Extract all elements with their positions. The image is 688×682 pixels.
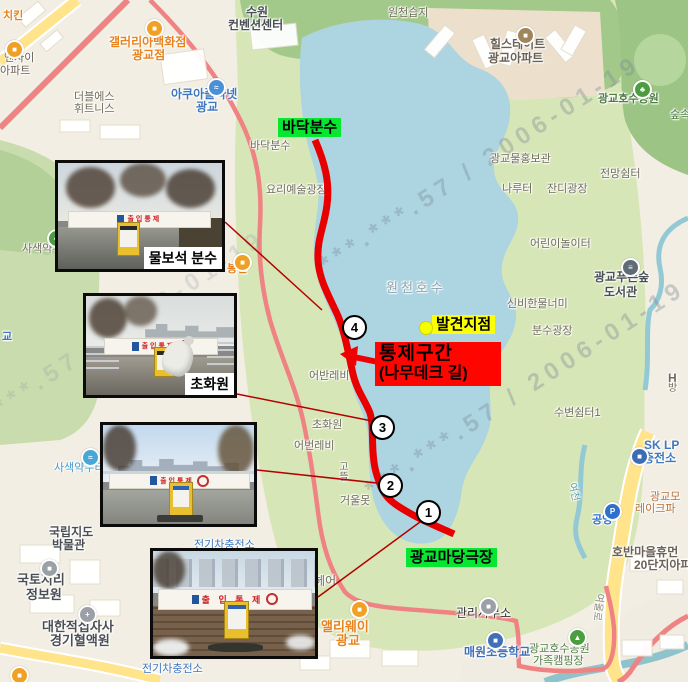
no-entry-stamp-icon (266, 593, 278, 605)
photo-label: 초화원 (185, 373, 234, 395)
route-marker-4: 4 (342, 315, 367, 340)
control-zone-box: 통제구간 (나무데크 길) (375, 342, 501, 386)
warning-sign (117, 222, 140, 256)
route-marker-1: 1 (416, 500, 441, 525)
control-zone-subtitle: (나무데크 길) (379, 365, 497, 383)
photo-closed-path: 출입통제 (100, 422, 257, 527)
route-marker-2: 2 (378, 473, 403, 498)
annotated-map-image: ***.***.57 / 2006-01-19 ***.***.57 / 200… (0, 0, 688, 682)
photo-closed-deck: 출 입 통 제 (150, 548, 318, 659)
photo-chohwawon: 출입통제 초화원 (83, 293, 237, 398)
route-marker-3: 3 (370, 415, 395, 440)
photo-label: 물보석 분수 (144, 247, 222, 269)
discovery-point-dot (419, 321, 433, 335)
no-entry-stamp-icon (197, 475, 209, 487)
tree (66, 167, 115, 207)
madang-theater-highlight: 광교마당극장 (406, 548, 497, 567)
photo-mulboseok-fountain: 출입통제 물보석 분수 (55, 160, 225, 272)
discovery-point-label: 발견지점 (432, 315, 495, 334)
control-zone-title: 통제구간 (379, 344, 497, 365)
floor-fountain-highlight: 바닥분수 (278, 118, 341, 137)
